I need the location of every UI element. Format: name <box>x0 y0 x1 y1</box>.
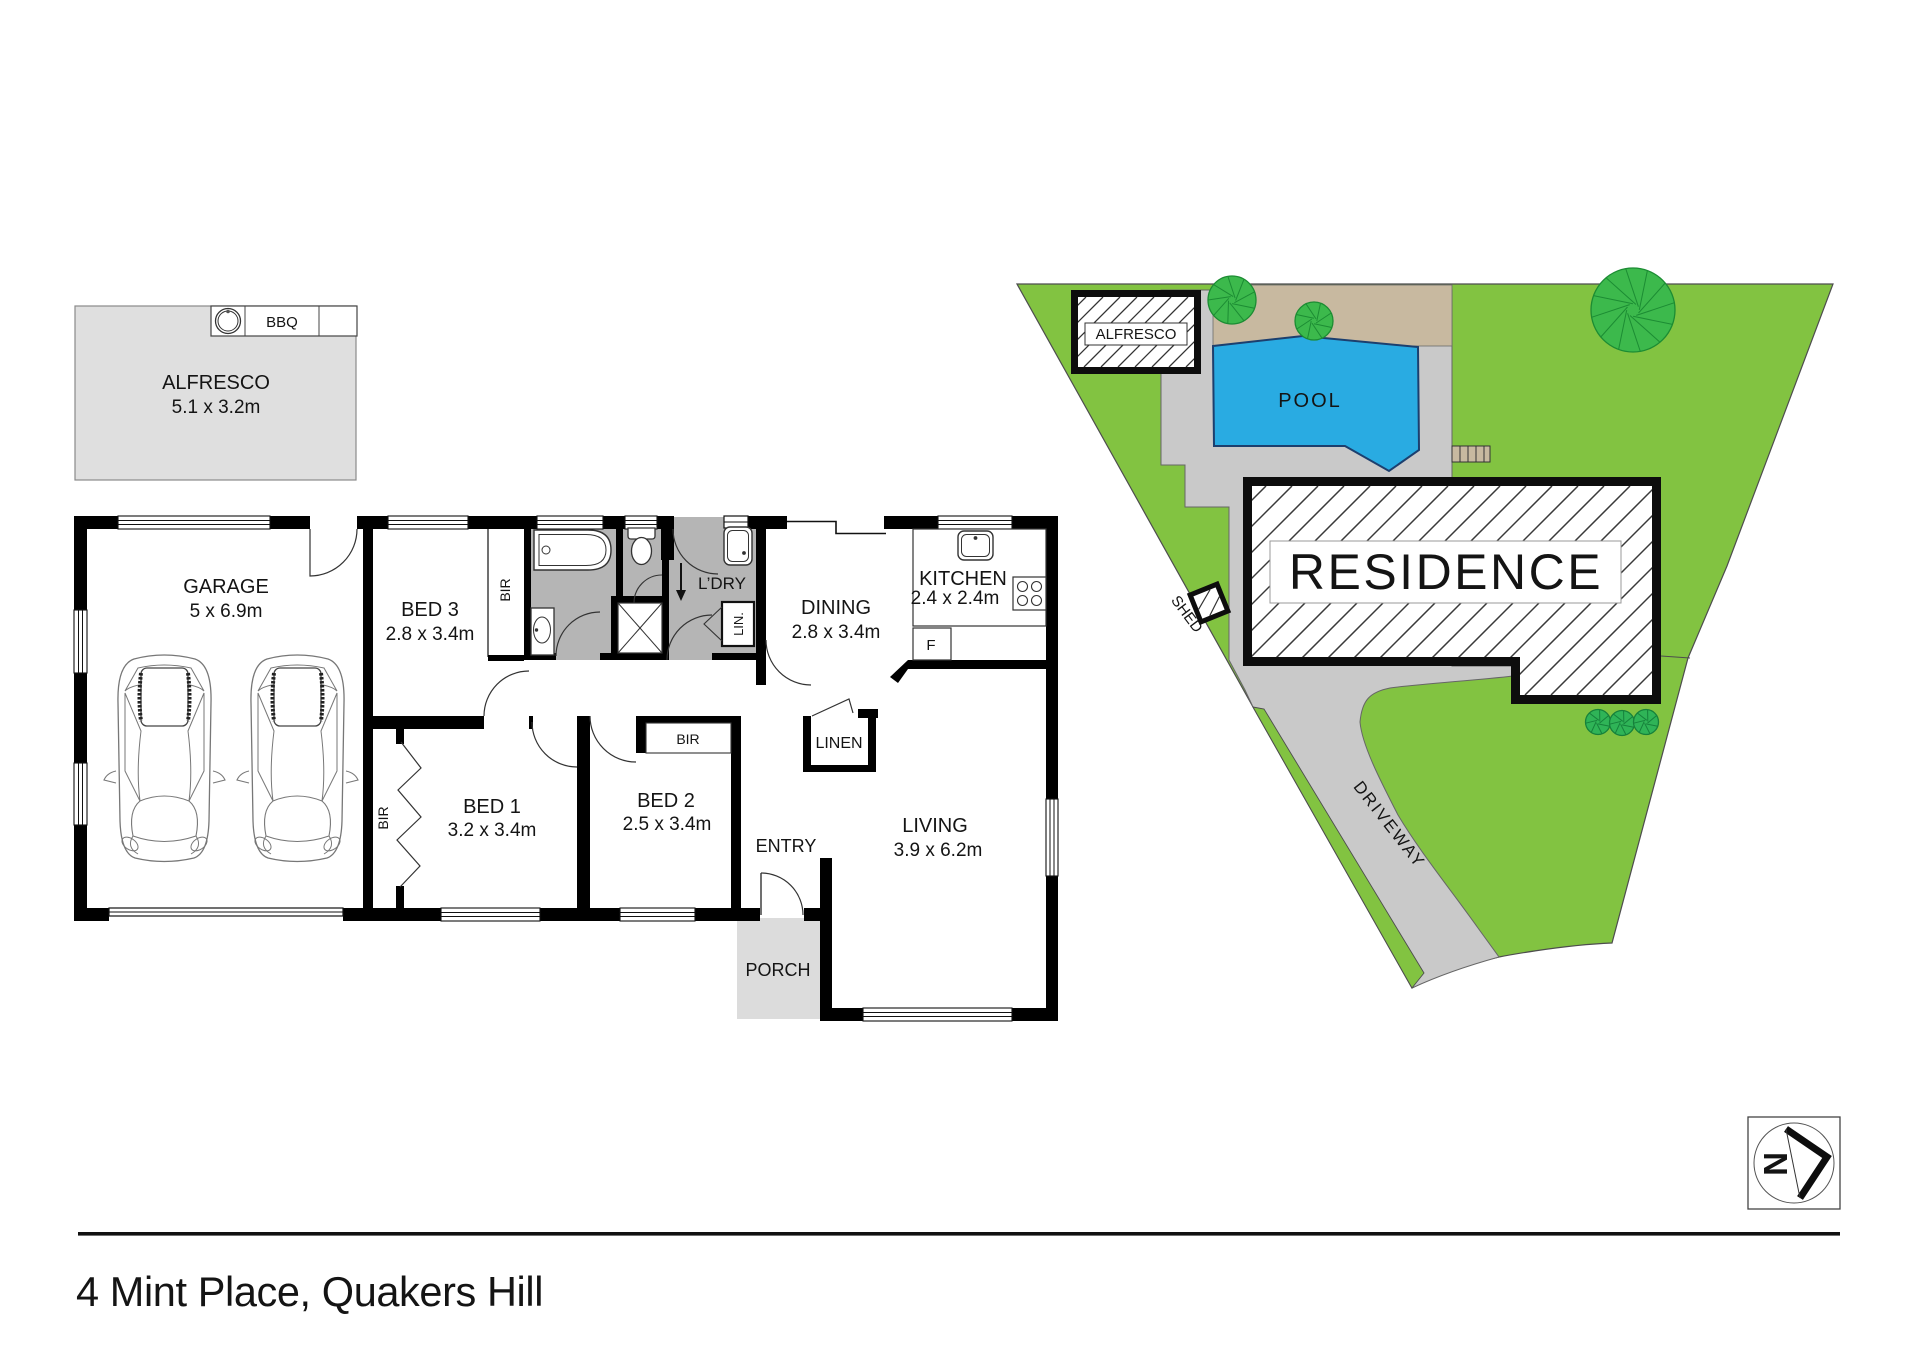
svg-text:2.8 x 3.4m: 2.8 x 3.4m <box>386 624 475 645</box>
svg-text:BED 1: BED 1 <box>463 796 521 818</box>
svg-text:LINEN: LINEN <box>815 735 862 752</box>
svg-text:F: F <box>926 637 935 654</box>
svg-text:PORCH: PORCH <box>745 960 810 980</box>
svg-text:BIR: BIR <box>375 806 391 829</box>
svg-text:RESIDENCE: RESIDENCE <box>1289 544 1603 600</box>
svg-text:ALFRESCO: ALFRESCO <box>162 372 270 394</box>
svg-text:2.5 x 3.4m: 2.5 x 3.4m <box>623 814 712 835</box>
svg-text:5 x 6.9m: 5 x 6.9m <box>190 601 263 622</box>
svg-text:POOL: POOL <box>1278 390 1342 412</box>
svg-text:GARAGE: GARAGE <box>183 576 269 598</box>
svg-text:BIR: BIR <box>497 578 513 601</box>
svg-text:BBQ: BBQ <box>266 314 298 331</box>
svg-text:LIVING: LIVING <box>902 815 968 837</box>
svg-text:N: N <box>1757 1152 1794 1176</box>
svg-text:BED 3: BED 3 <box>401 599 459 621</box>
svg-text:DINING: DINING <box>801 597 871 619</box>
svg-text:3.9 x 6.2m: 3.9 x 6.2m <box>894 840 983 861</box>
svg-text:2.8 x 3.4m: 2.8 x 3.4m <box>792 622 881 643</box>
svg-text:ENTRY: ENTRY <box>756 836 817 856</box>
svg-text:KITCHEN: KITCHEN <box>919 568 1007 590</box>
svg-text:BIR: BIR <box>676 731 699 747</box>
svg-text:3.2 x 3.4m: 3.2 x 3.4m <box>448 820 537 841</box>
svg-text:BED 2: BED 2 <box>637 790 695 812</box>
svg-text:4 Mint Place, Quakers Hill: 4 Mint Place, Quakers Hill <box>76 1268 543 1315</box>
svg-text:5.1 x 3.2m: 5.1 x 3.2m <box>172 397 261 418</box>
svg-text:LIN.: LIN. <box>731 612 746 636</box>
svg-text:2.4 x 2.4m: 2.4 x 2.4m <box>911 588 1000 609</box>
svg-text:ALFRESCO: ALFRESCO <box>1096 326 1177 343</box>
svg-text:L’DRY: L’DRY <box>698 574 746 593</box>
